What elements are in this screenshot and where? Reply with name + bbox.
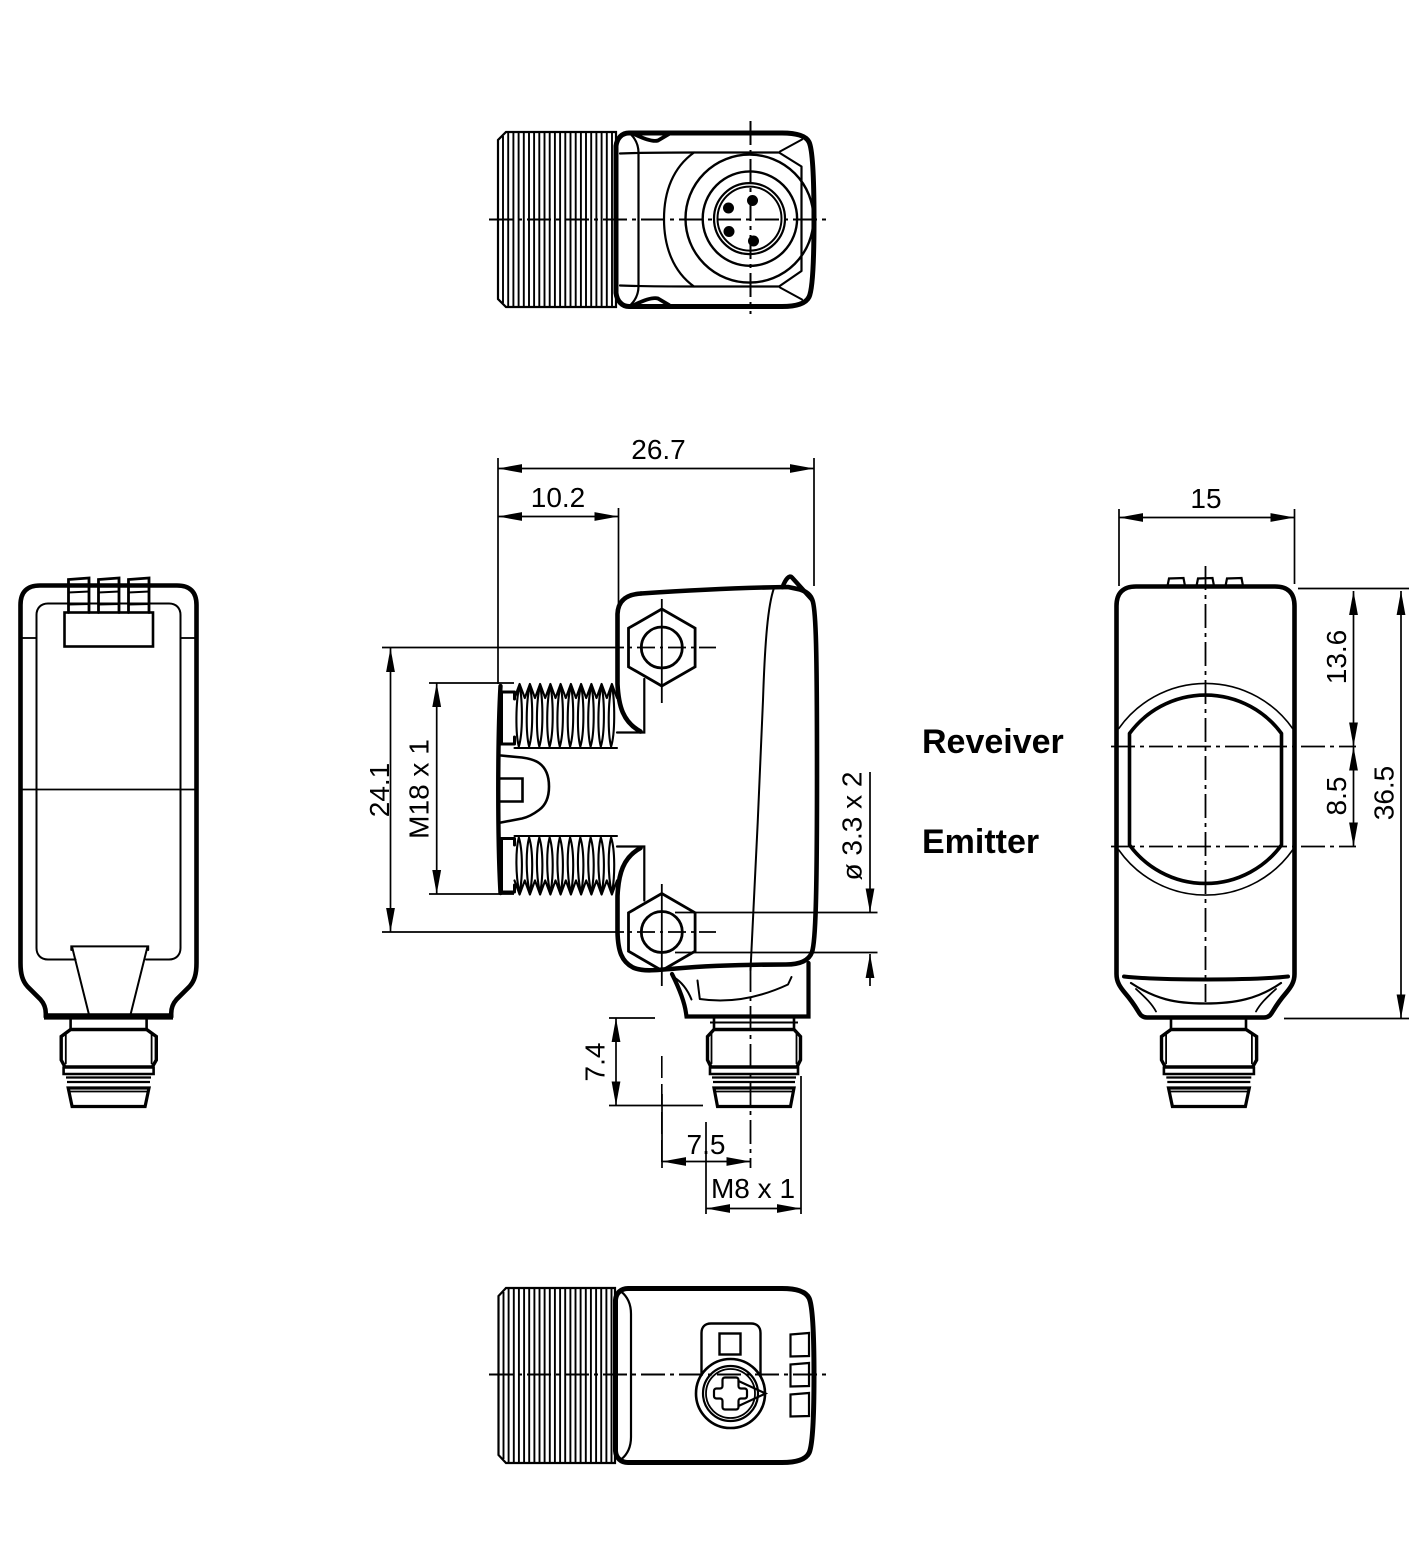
svg-text:36.5: 36.5: [1369, 766, 1400, 821]
svg-text:15: 15: [1190, 483, 1221, 514]
svg-text:Emitter: Emitter: [922, 823, 1039, 861]
svg-text:13.6: 13.6: [1321, 630, 1352, 685]
svg-text:M18 x 1: M18 x 1: [404, 739, 435, 839]
svg-text:7.4: 7.4: [580, 1043, 611, 1082]
svg-text:26.7: 26.7: [631, 434, 686, 465]
svg-text:ø 3.3 x 2: ø 3.3 x 2: [837, 772, 868, 881]
svg-text:24.1: 24.1: [364, 763, 395, 818]
svg-text:10.2: 10.2: [531, 482, 586, 513]
svg-text:Reveiver: Reveiver: [922, 723, 1064, 761]
svg-text:M8 x 1: M8 x 1: [711, 1173, 795, 1204]
svg-text:8.5: 8.5: [1321, 777, 1352, 816]
